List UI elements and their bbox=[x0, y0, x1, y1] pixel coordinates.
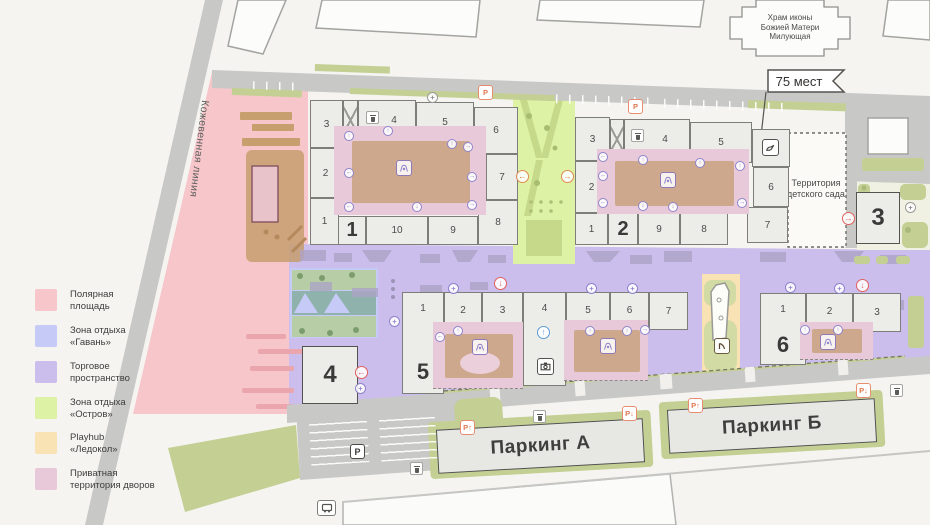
b5-section-6-label: 6 bbox=[627, 305, 633, 316]
legend-label-line: Playhub bbox=[70, 432, 118, 444]
path-dot bbox=[391, 295, 395, 299]
b1-section-10-label: 10 bbox=[391, 225, 402, 236]
b1-section-3-label: 3 bbox=[324, 119, 330, 130]
entrance-icon bbox=[598, 198, 608, 208]
entrance-icon bbox=[737, 198, 747, 208]
entrance-icon bbox=[640, 325, 650, 335]
church-label-line2: Божией Матери bbox=[742, 23, 838, 33]
legend-label-line: «Гавань» bbox=[70, 337, 126, 349]
b2-section-5-label: 5 bbox=[718, 137, 724, 148]
playground-icon bbox=[472, 339, 488, 355]
b2-section-2-label: 2 bbox=[589, 182, 595, 193]
b2-section-4-label: 4 bbox=[662, 134, 668, 145]
entrance-icon bbox=[638, 155, 648, 165]
bottom-white-building bbox=[343, 474, 676, 525]
path-dot bbox=[391, 287, 395, 291]
b2-section-7: 7 bbox=[747, 207, 788, 243]
entrance-icon bbox=[463, 142, 473, 152]
legend-item-playhub: Playhub «Ледокол» bbox=[35, 432, 118, 455]
camera-icon bbox=[537, 358, 554, 375]
parking-entry-sign: P↑ bbox=[688, 398, 703, 413]
church-label: Храм иконы Божией Матери Милующая bbox=[742, 13, 838, 42]
b2-section-9: 9 bbox=[638, 213, 680, 245]
retail-entry-icon bbox=[834, 283, 845, 294]
car-entry-icon bbox=[494, 277, 507, 290]
b5-section-2-label: 2 bbox=[460, 305, 466, 316]
harbor-deco bbox=[292, 270, 376, 337]
legend-label-line: Полярная bbox=[70, 289, 114, 301]
legend-label-island: Зона отдыха «Остров» bbox=[70, 397, 126, 420]
legend-label-retail: Торговое пространство bbox=[70, 361, 130, 384]
retail-entry-icon bbox=[785, 282, 796, 293]
kindergarten-label-line2: детского сада bbox=[778, 189, 854, 200]
b6-section-3-label: 3 bbox=[874, 307, 880, 318]
parking-entry-sign: P↑ bbox=[460, 420, 475, 435]
parking-ticks-top-1 bbox=[253, 81, 301, 91]
entrance-icon bbox=[833, 325, 843, 335]
kindergarten-icon bbox=[762, 139, 779, 156]
legend-item-polar-square: Полярная площадь bbox=[35, 289, 114, 312]
retail-entry-icon bbox=[627, 283, 638, 294]
b6-number: 6 bbox=[761, 332, 805, 358]
legend-swatch-harbor bbox=[35, 325, 57, 347]
b5-section-7: 7 bbox=[649, 292, 688, 330]
entrance-icon bbox=[467, 172, 477, 182]
playground-icon bbox=[396, 160, 412, 176]
entrance-icon bbox=[344, 131, 354, 141]
b1-number-cell: 1 bbox=[338, 216, 366, 245]
legend-label-private-yards: Приватная территория дворов bbox=[70, 468, 155, 491]
passage-icon bbox=[537, 326, 550, 339]
b5-section-5-label: 5 bbox=[585, 305, 591, 316]
kindergarten-label-line1: Территория bbox=[778, 178, 854, 189]
trash-icon bbox=[533, 410, 546, 423]
entrance-icon bbox=[412, 202, 422, 212]
parking-ticks-lot-2 bbox=[379, 412, 438, 461]
parking-entry-label: P↑ bbox=[463, 423, 472, 432]
entrance-icon bbox=[668, 202, 678, 212]
car-entry-icon bbox=[842, 212, 855, 225]
retail-entry-icon bbox=[389, 316, 400, 327]
slide-icon bbox=[714, 338, 730, 354]
b1-section-8-label: 8 bbox=[495, 217, 501, 228]
parking-entry-label: P↑ bbox=[691, 401, 700, 410]
parking-exit-sign: P↓ bbox=[622, 406, 637, 421]
playground-icon bbox=[820, 334, 836, 350]
playhub-deco bbox=[704, 280, 737, 372]
entrance-icon bbox=[638, 201, 648, 211]
b2-number-cell: 2 bbox=[608, 213, 638, 245]
legend-label-line: площадь bbox=[70, 301, 114, 313]
b1-section-10: 10 bbox=[366, 216, 428, 245]
pedestrian-route-icon bbox=[561, 170, 574, 183]
b1-section-2-label: 2 bbox=[323, 168, 329, 179]
b1-section-7: 7 bbox=[486, 154, 518, 200]
trash-icon bbox=[890, 384, 903, 397]
b5-section-4-label: 4 bbox=[524, 303, 565, 314]
b2-section-9-label: 9 bbox=[656, 224, 662, 235]
church-label-line3: Милующая bbox=[742, 32, 838, 42]
entrance-icon bbox=[695, 158, 705, 168]
legend-label-line: «Остров» bbox=[70, 409, 126, 421]
entrance-icon bbox=[344, 202, 354, 212]
b2-section-8: 8 bbox=[680, 213, 728, 245]
car-entry-icon bbox=[355, 366, 368, 379]
legend-label-line: пространство bbox=[70, 373, 130, 385]
entrance-icon bbox=[585, 326, 595, 336]
church-label-line1: Храм иконы bbox=[742, 13, 838, 23]
trash-icon bbox=[631, 129, 644, 142]
entrance-icon bbox=[383, 126, 393, 136]
legend-swatch-retail bbox=[35, 361, 57, 383]
b2-section-7-label: 7 bbox=[765, 220, 771, 231]
legend-swatch-private-yards bbox=[35, 468, 57, 490]
legend-label-line: Торговое bbox=[70, 361, 130, 373]
trash-icon bbox=[366, 111, 379, 124]
entrance-icon bbox=[447, 139, 457, 149]
b5-section-3-label: 3 bbox=[500, 305, 506, 316]
b1-section-1-label: 1 bbox=[322, 216, 328, 227]
legend-label-harbor: Зона отдыха «Гавань» bbox=[70, 325, 126, 348]
masterplan-map: Кожевенная линия Храм иконы Божией Матер… bbox=[0, 0, 930, 525]
b1-section-9-label: 9 bbox=[450, 225, 456, 236]
legend-label-line: территория дворов bbox=[70, 480, 155, 492]
legend-swatch-island bbox=[35, 397, 57, 419]
kindergarten-label: Территория детского сада bbox=[778, 178, 854, 200]
poi-icon bbox=[905, 202, 916, 213]
b2-section-1: 1 bbox=[575, 213, 608, 245]
b6-section-1-label: 1 bbox=[761, 304, 805, 315]
legend-item-retail: Торговое пространство bbox=[35, 361, 130, 384]
surface-parking-label: P bbox=[354, 447, 360, 457]
b3-number: 3 bbox=[871, 204, 884, 232]
legend-swatch-playhub bbox=[35, 432, 57, 454]
legend-label-polar-square: Полярная площадь bbox=[70, 289, 114, 312]
legend-item-harbor: Зона отдыха «Гавань» bbox=[35, 325, 126, 348]
building-4: 4 bbox=[302, 346, 358, 404]
b2-section-3-label: 3 bbox=[590, 134, 596, 145]
parking-exit-label: P↓ bbox=[859, 386, 868, 395]
playground-icon bbox=[600, 338, 616, 354]
b1-section-4-label: 4 bbox=[391, 115, 397, 126]
building-3: 3 bbox=[856, 192, 900, 244]
entrance-icon bbox=[800, 325, 810, 335]
b1-section-9: 9 bbox=[428, 216, 478, 245]
icebreaker-icon bbox=[711, 283, 729, 340]
b1-section-7-label: 7 bbox=[499, 172, 505, 183]
entrance-icon bbox=[598, 152, 608, 162]
b1-number: 1 bbox=[346, 219, 357, 242]
parking-b-label: Паркинг Б bbox=[722, 412, 823, 440]
legend-label-line: Зона отдыха bbox=[70, 397, 126, 409]
entrance-icon bbox=[435, 332, 445, 342]
parking-sign: P bbox=[628, 99, 643, 114]
b5-courtyard-left-blob bbox=[460, 352, 500, 374]
b2-section-6-label: 6 bbox=[768, 182, 774, 193]
legend-label-line: Зона отдыха bbox=[70, 325, 126, 337]
entrance-icon bbox=[622, 326, 632, 336]
b2-section-6: 6 bbox=[753, 167, 789, 207]
retail-entry-icon bbox=[448, 283, 459, 294]
retail-entry-icon bbox=[586, 283, 597, 294]
entrance-icon bbox=[598, 171, 608, 181]
car-entry-icon bbox=[856, 279, 869, 292]
b6-section-2-label: 2 bbox=[827, 306, 833, 317]
parking-a-label: Паркинг А bbox=[490, 432, 591, 460]
b1-section-6-label: 6 bbox=[493, 125, 499, 136]
path-dot bbox=[391, 279, 395, 283]
playground-icon bbox=[660, 172, 676, 188]
b2-section-1-label: 1 bbox=[589, 224, 595, 235]
legend-item-island: Зона отдыха «Остров» bbox=[35, 397, 126, 420]
parking-exit-sign: P↓ bbox=[856, 383, 871, 398]
retail-entry-icon bbox=[355, 383, 366, 394]
legend-label-line: Приватная bbox=[70, 468, 155, 480]
bus-icon bbox=[317, 500, 336, 516]
pedestrian-route-icon bbox=[516, 170, 529, 183]
parking-sign-label: P bbox=[483, 88, 488, 97]
b5-section-1-label: 1 bbox=[403, 303, 443, 314]
b2-number: 2 bbox=[617, 218, 628, 241]
poi-icon bbox=[427, 92, 438, 103]
entrance-icon bbox=[735, 161, 745, 171]
legend-swatch-polar-square bbox=[35, 289, 57, 311]
parking-sign: P bbox=[478, 85, 493, 100]
entrance-icon bbox=[453, 326, 463, 336]
trash-icon bbox=[410, 462, 423, 475]
legend-label-line: «Ледокол» bbox=[70, 444, 118, 456]
surface-parking-sign: P bbox=[350, 444, 365, 459]
capacity-flag-label: 75 мест bbox=[770, 74, 828, 89]
entrance-icon bbox=[344, 168, 354, 178]
legend-label-playhub: Playhub «Ледокол» bbox=[70, 432, 118, 455]
b5-section-7-label: 7 bbox=[666, 306, 672, 317]
entrance-icon bbox=[467, 200, 477, 210]
parking-exit-label: P↓ bbox=[625, 409, 634, 418]
b2-section-8-label: 8 bbox=[701, 224, 707, 235]
b4-number: 4 bbox=[323, 361, 336, 389]
parking-sign-label: P bbox=[633, 102, 638, 111]
legend-item-private-yards: Приватная территория дворов bbox=[35, 468, 155, 491]
